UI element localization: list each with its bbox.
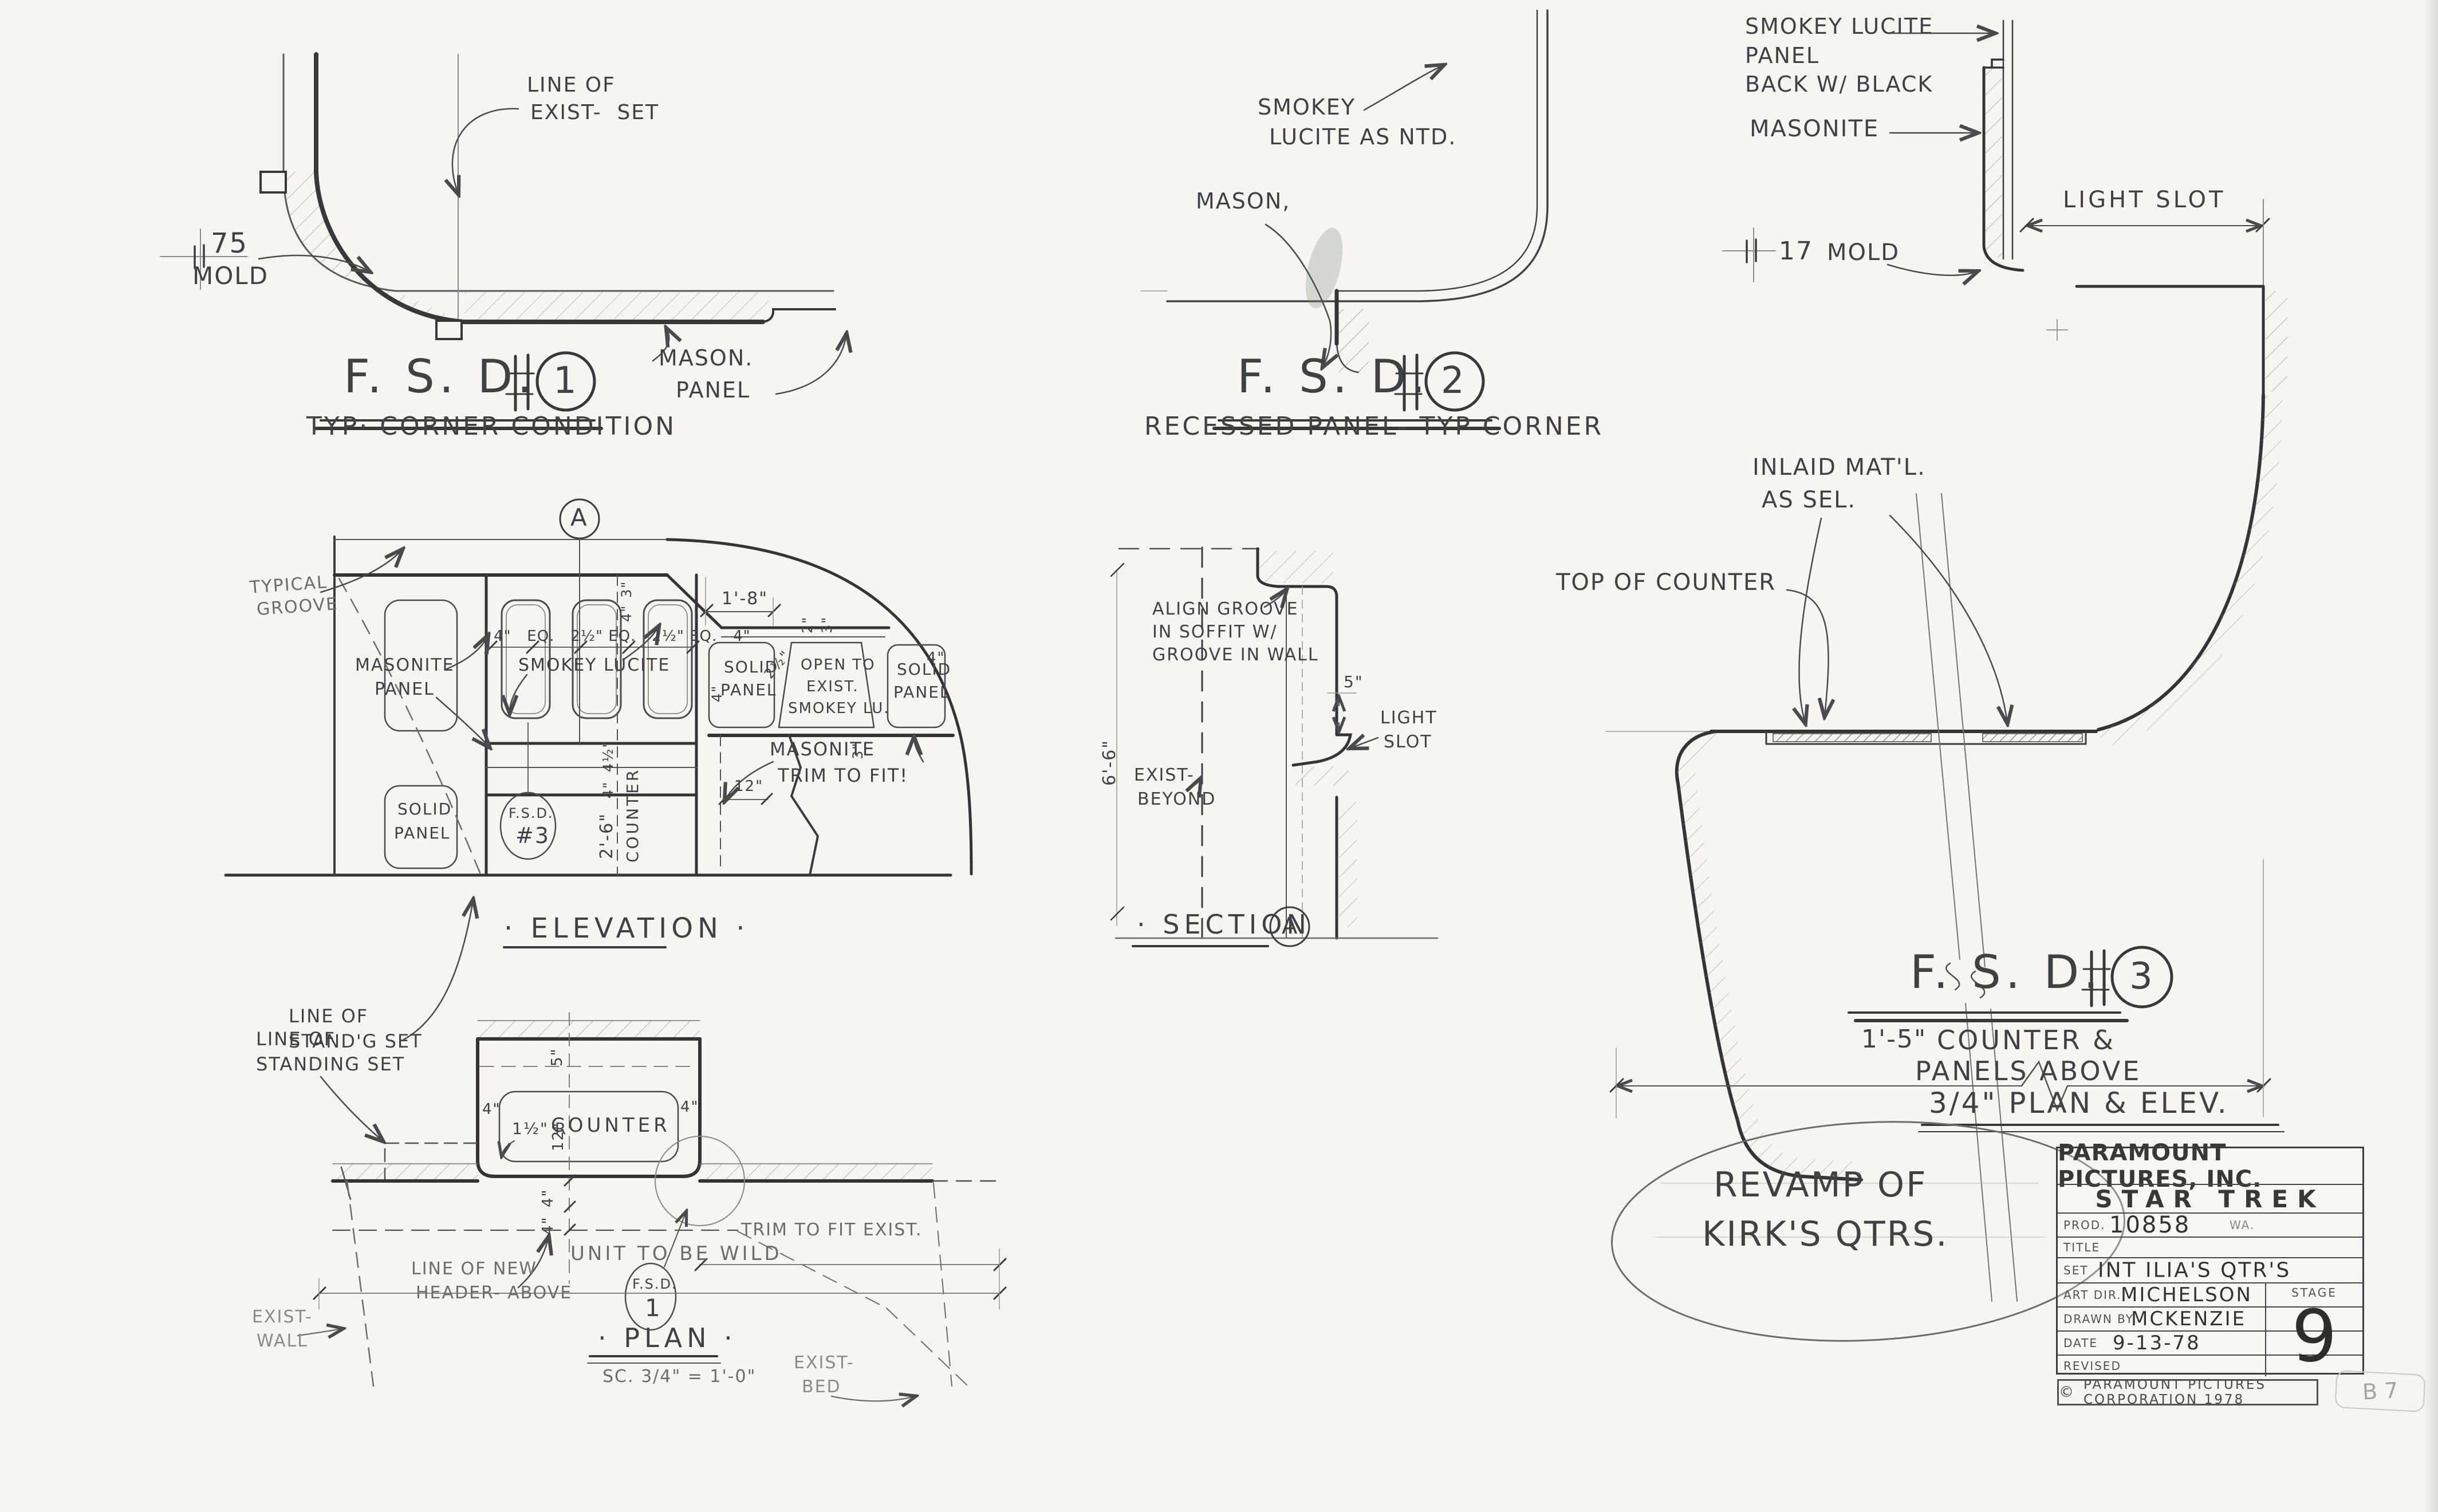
- plan-counter-label: COUNTER: [551, 1116, 671, 1136]
- date-value: 9-13-78: [2113, 1332, 2201, 1354]
- art-director-label: ART DIR.: [2063, 1288, 2122, 1302]
- elevation-solid-panel-c: SOLID: [397, 801, 452, 817]
- drawn-by-value: MCKENZIE: [2131, 1308, 2246, 1330]
- copyright-symbol: ©: [2059, 1384, 2075, 1401]
- plan-exist-wall-label: EXIST-: [252, 1308, 313, 1326]
- elevation-dim-1-8: 1'-8": [722, 590, 768, 608]
- section-light-slot-label-2: SLOT: [1384, 733, 1432, 751]
- elevation-solid-panel-b-2: PANEL: [893, 684, 950, 700]
- elevation-solid-panel-a: SOLID: [724, 659, 778, 675]
- section-align-groove-label: ALIGN GROOVE: [1152, 600, 1299, 619]
- elevation-masonite-panel-label-2: PANEL: [375, 680, 435, 699]
- elevation-open-to-label: OPEN TO: [801, 657, 876, 673]
- plan-dim-4-left: 4": [482, 1102, 501, 1117]
- copyright-box: © PARAMOUNT PICTURES CORPORATION 1978: [2057, 1379, 2318, 1405]
- plan-exist-wall-label-2: WALL: [257, 1332, 308, 1350]
- plan-dim-4-b: 4": [541, 1216, 556, 1235]
- elevation-solid-panel-a-2: PANEL: [720, 682, 777, 698]
- plan-dim-12: 12": [551, 1122, 566, 1151]
- section-light-slot-label: LIGHT: [1380, 709, 1437, 727]
- elevation-title: · ELEVATION ·: [504, 914, 749, 943]
- fsd3-inlaid-label: INLAID MAT'L.: [1752, 455, 1926, 479]
- elevation-solid-panel-b: SOLID: [897, 661, 951, 678]
- copyright-text: PARAMOUNT PICTURES CORPORATION 1978: [2083, 1377, 2317, 1407]
- fsd3-scale-note: 3/4" PLAN & ELEV.: [1929, 1088, 2229, 1119]
- plan-dim-5: 5": [550, 1048, 565, 1066]
- fsd3-mold-label: MOLD: [1827, 241, 1900, 265]
- fsd3-light-slot-label: LIGHT SLOT: [2063, 188, 2226, 212]
- set-label: SET: [2063, 1263, 2089, 1277]
- plan-fsd-reference-number: 1: [645, 1296, 661, 1321]
- elevation-dim-4-top: 4": [620, 605, 634, 622]
- plan-trim-label: TRIM TO FIT EXIST.: [741, 1221, 923, 1239]
- plan-exist-bed-label-2: BED: [802, 1378, 841, 1396]
- elevation-counter-height-dim: 2'-6": [598, 813, 616, 859]
- section-dim-5: 5": [1344, 674, 1364, 690]
- prod-label: PROD.: [2063, 1218, 2105, 1232]
- elevation-dim-4half: 4½": [601, 740, 616, 772]
- fsd1-mold-label: MOLD: [192, 263, 269, 289]
- fsd3-smokey-label-3: BACK W/ BLACK: [1745, 73, 1933, 96]
- fsd1-subtitle: TYP· CORNER CONDITION: [306, 414, 676, 440]
- revamp-note-line1: REVAMP OF: [1714, 1167, 1928, 1203]
- fsd2-detail-number: 2: [1441, 362, 1466, 400]
- fsd1-line-of-exist-label-2: EXIST- SET: [530, 102, 659, 124]
- elevation-masonite-trim-label: MASONITE: [770, 740, 875, 759]
- title-block-production: STAR TREK: [2095, 1185, 2325, 1213]
- elevation-section-bubble: A: [570, 505, 588, 530]
- fsd3-masonite-label: MASONITE: [1750, 117, 1879, 141]
- pencil-note: B 7: [2334, 1370, 2425, 1412]
- section-bubble: A: [1282, 914, 1298, 938]
- fsd1-mason-label: MASON.: [659, 347, 753, 370]
- elevation-masonite-panel-label: MASONITE: [355, 656, 455, 675]
- set-value: INT ILIA'S QTR'S: [2098, 1259, 2291, 1282]
- pencil-note-text: B 7: [2362, 1377, 2399, 1404]
- fsd1-panel-label: PANEL: [676, 379, 750, 402]
- fsd2-smokey-label: SMOKEY: [1258, 96, 1356, 119]
- fsd2-title: F. S. D.: [1237, 353, 1430, 401]
- stage-number: 9: [2266, 1295, 2362, 1378]
- revamp-note-line2: KIRK'S QTRS.: [1702, 1216, 1948, 1253]
- date-label: DATE: [2063, 1336, 2098, 1350]
- plan-exist-bed-label: EXIST-: [794, 1354, 854, 1372]
- fsd1-detail-number: 1: [553, 362, 578, 400]
- prod-number: 10858: [2109, 1212, 2191, 1238]
- fsd2-subtitle: RECESSED PANEL- TYP CORNER: [1144, 414, 1604, 440]
- elevation-open-to-label-2: EXIST.: [806, 679, 858, 695]
- fsd1-line-of-exist-label: LINE OF: [527, 74, 616, 96]
- prod-suffix: WA.: [2230, 1218, 2255, 1232]
- revised-label: REVISED: [2063, 1359, 2121, 1373]
- plan-header-label-2: HEADER- ABOVE: [416, 1284, 572, 1302]
- elevation-masonite-trim-label-2: TRIM TO FIT!: [778, 766, 908, 786]
- fsd3-detail-number: 3: [2129, 958, 2154, 996]
- elevation-dim-2-right: 2": [801, 616, 815, 633]
- plan-dim-4-right: 4": [680, 1100, 699, 1115]
- drawn-by-label: DRAWN BY: [2063, 1312, 2134, 1326]
- elevation-fsd-reference-number: #3: [515, 825, 550, 848]
- title-block: PARAMOUNT PICTURES, INC. STAR TREK PROD.…: [2056, 1147, 2364, 1375]
- fsd3-top-of-counter-label: TOP OF COUNTER: [1556, 570, 1776, 594]
- elevation-smokey-lucite-label: SMOKEY LUCITE: [518, 656, 670, 675]
- elevation-dim-12: 12": [734, 779, 763, 794]
- fsd2-smokey-label-2: LUCITE AS NTD.: [1269, 126, 1456, 149]
- fsd3-smokey-label: SMOKEY LUCITE: [1745, 15, 1933, 38]
- elevation-dims-row: 4" EQ. 2½" EQ. 2½" EQ. 4": [494, 629, 751, 644]
- fsd1-title: F. S. D.: [344, 353, 537, 401]
- fsd3-title: F. S. D.: [1910, 948, 2103, 997]
- plan-standing-set-label: LINE OF: [256, 1030, 336, 1049]
- plan-unit-wild-label: UNIT TO BE WILD: [570, 1244, 782, 1265]
- elevation-dim-4-mid: 4": [601, 781, 616, 798]
- drafting-sheet: LINE OF EXIST- SET 75 MOLD MASON. PANEL …: [0, 0, 2438, 1512]
- fsd3-inlaid-label-2: AS SEL.: [1762, 488, 1856, 512]
- section-exist-beyond-label: EXIST-: [1134, 766, 1195, 785]
- elevation-solid-panel-c-2: PANEL: [394, 825, 450, 841]
- plan-fsd-reference: F.S.D.: [632, 1277, 678, 1291]
- plan-title: · PLAN ·: [598, 1324, 737, 1352]
- elevation-counter-word: COUNTER: [624, 768, 641, 863]
- fsd3-width-dimension: 1'-5": [1861, 1026, 1927, 1053]
- section-height-dimension: 6'-6": [1101, 739, 1119, 786]
- elevation-dim-3-top: 3": [620, 581, 634, 598]
- fsd1-mold-number: 75: [211, 229, 248, 258]
- fsd2-mason-label: MASON,: [1196, 190, 1290, 213]
- fsd3-subtitle-2: PANELS ABOVE: [1915, 1057, 2141, 1085]
- plan-standing-set-label-2: STANDING SET: [256, 1055, 405, 1074]
- plan-dim-4-a: 4": [541, 1188, 556, 1207]
- art-director-value: MICHELSON: [2121, 1283, 2252, 1306]
- fsd3-mold-number: 17: [1779, 238, 1813, 265]
- plan-header-label: LINE OF NEW: [411, 1260, 537, 1278]
- elevation-fsd-reference: F.S.D.: [509, 806, 554, 821]
- elevation-standing-set-label: LINE OF: [289, 1007, 368, 1026]
- section-align-groove-label-2: IN SOFFIT W/: [1152, 623, 1277, 641]
- section-exist-beyond-label-2: BEYOND: [1137, 790, 1216, 809]
- fsd3-subtitle: COUNTER &: [1937, 1026, 2116, 1054]
- title-label: TITLE: [2063, 1241, 2100, 1254]
- section-align-groove-label-3: GROOVE IN WALL: [1152, 646, 1319, 664]
- elevation-dim-3-right: 3": [820, 616, 834, 633]
- plan-scale-note: SC. 3/4" = 1'-0": [602, 1368, 756, 1386]
- fsd3-smokey-label-2: PANEL: [1745, 45, 1819, 68]
- elevation-open-to-label-3: SMOKEY LU.: [788, 701, 890, 716]
